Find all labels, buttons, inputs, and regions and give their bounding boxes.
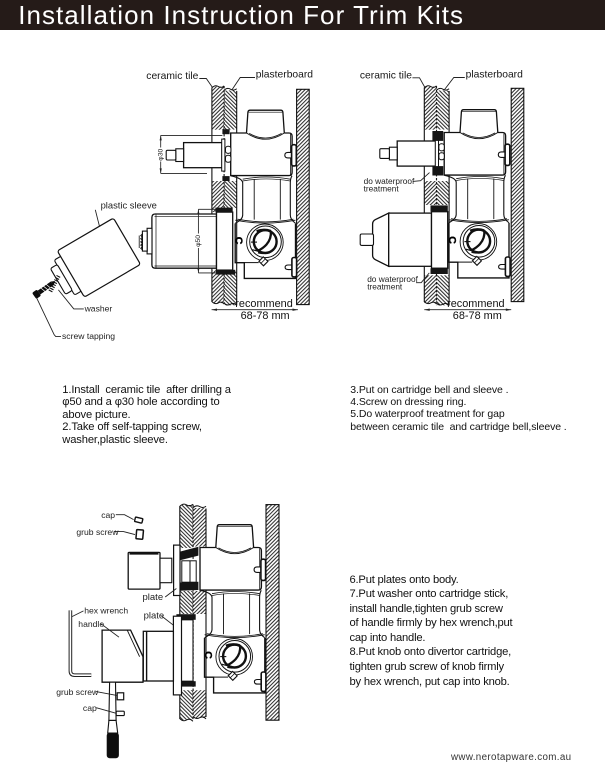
- svg-text:grub screw: grub screw: [76, 527, 119, 537]
- svg-text:68-78 mm: 68-78 mm: [241, 310, 290, 322]
- svg-text:grub screw: grub screw: [56, 687, 99, 697]
- svg-text:washer: washer: [84, 304, 113, 314]
- svg-text:cap: cap: [101, 510, 115, 520]
- svg-text:hex wrench: hex wrench: [84, 606, 128, 616]
- svg-text:68-78 mm: 68-78 mm: [453, 310, 502, 322]
- svg-text:treatment: treatment: [364, 183, 400, 193]
- svg-text:φ50: φ50: [195, 235, 202, 247]
- svg-text:ceramic tile: ceramic tile: [146, 71, 198, 82]
- svg-text:φ30: φ30: [157, 148, 164, 160]
- svg-text:plasterboard: plasterboard: [256, 70, 314, 81]
- svg-text:plate: plate: [144, 611, 165, 622]
- svg-text:plate: plate: [143, 592, 164, 603]
- svg-text:ceramic tile: ceramic tile: [360, 70, 412, 81]
- svg-text:treatment: treatment: [367, 281, 403, 291]
- svg-text:cap: cap: [83, 703, 97, 713]
- svg-text:plastic sleeve: plastic sleeve: [101, 200, 157, 211]
- svg-text:handle: handle: [78, 619, 104, 629]
- svg-text:recommend: recommend: [447, 298, 505, 310]
- svg-text:recommend: recommend: [235, 298, 293, 310]
- svg-text:screw tapping: screw tapping: [62, 331, 115, 341]
- svg-text:plasterboard: plasterboard: [466, 70, 524, 81]
